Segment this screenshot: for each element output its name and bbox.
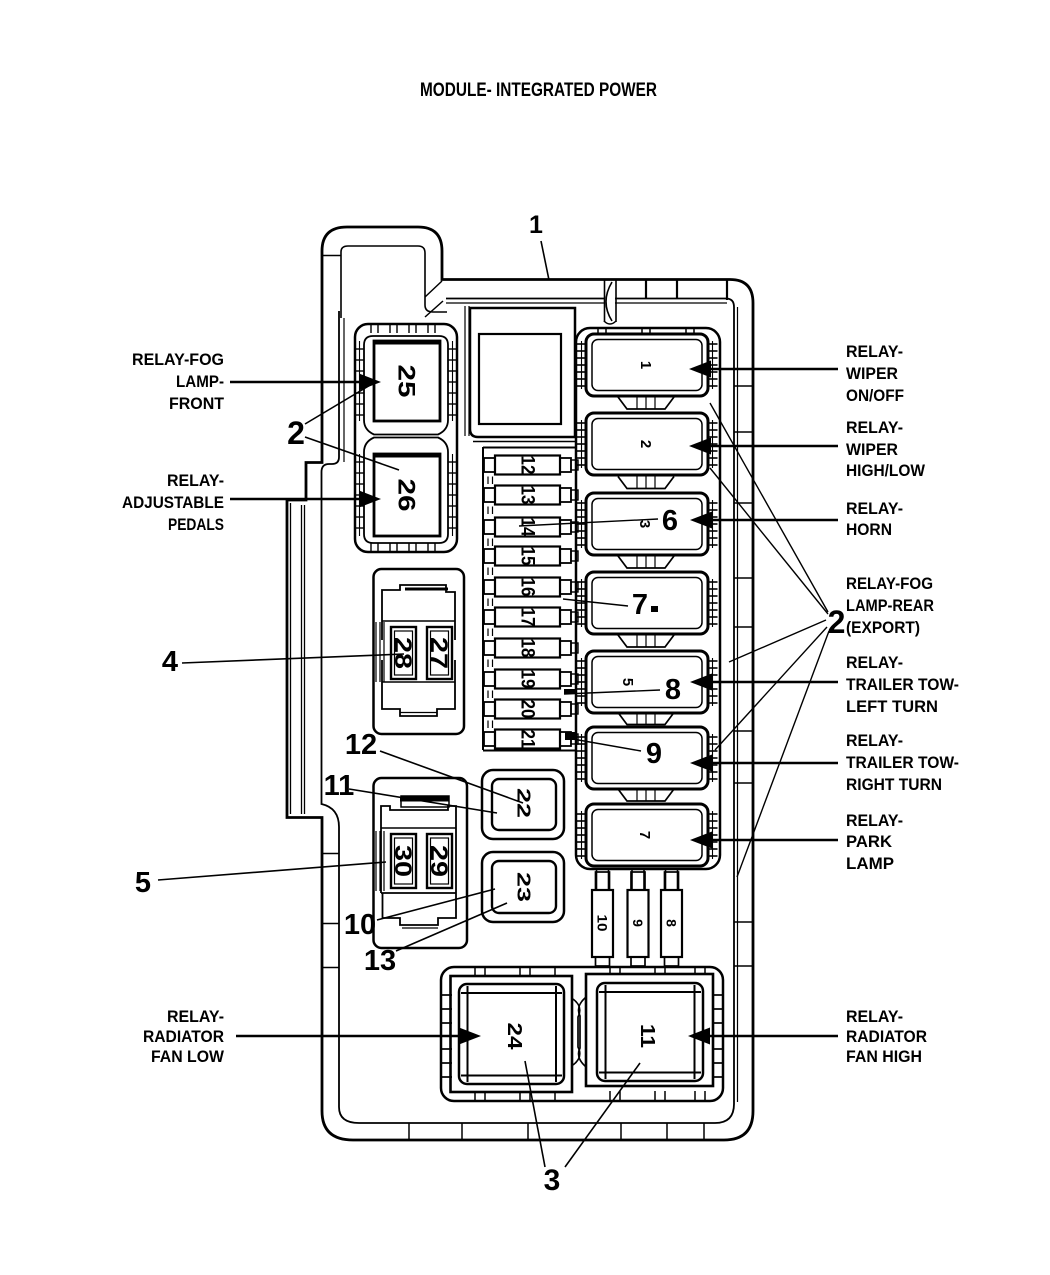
svg-text:RADIATOR: RADIATOR <box>846 1027 927 1046</box>
svg-text:4: 4 <box>162 646 178 678</box>
svg-text:RELAY-: RELAY- <box>846 811 903 830</box>
svg-text:PARK: PARK <box>846 832 893 851</box>
svg-text:MODULE- INTEGRATED POWER: MODULE- INTEGRATED POWER <box>420 80 657 101</box>
svg-text:ADJUSTABLE: ADJUSTABLE <box>122 493 224 512</box>
svg-text:RADIATOR: RADIATOR <box>143 1027 224 1046</box>
svg-text:13: 13 <box>516 486 537 505</box>
svg-text:6: 6 <box>662 505 678 537</box>
svg-text:RELAY-: RELAY- <box>846 342 903 361</box>
svg-text:RELAY-: RELAY- <box>846 418 903 437</box>
svg-text:PEDALS: PEDALS <box>168 515 224 534</box>
svg-text:WIPER: WIPER <box>846 364 898 383</box>
svg-text:30: 30 <box>389 845 416 877</box>
svg-text:RELAY-: RELAY- <box>846 1007 903 1026</box>
svg-text:11: 11 <box>324 770 355 802</box>
svg-text:18: 18 <box>516 639 537 658</box>
svg-text:TRAILER TOW-: TRAILER TOW- <box>846 675 959 694</box>
svg-text:14: 14 <box>516 518 537 537</box>
svg-text:21: 21 <box>516 730 537 749</box>
svg-text:29: 29 <box>425 845 452 877</box>
svg-text:RELAY-: RELAY- <box>846 731 903 750</box>
svg-text:TRAILER TOW-: TRAILER TOW- <box>846 753 959 772</box>
svg-text:LAMP-: LAMP- <box>176 372 224 391</box>
svg-text:23: 23 <box>514 872 534 902</box>
svg-text:17: 17 <box>516 608 537 627</box>
svg-text:2: 2 <box>637 440 654 448</box>
svg-text:(EXPORT): (EXPORT) <box>846 618 920 637</box>
svg-text:2: 2 <box>287 415 305 451</box>
svg-text:3: 3 <box>544 1164 561 1197</box>
svg-text:10: 10 <box>595 915 611 932</box>
svg-text:FAN HIGH: FAN HIGH <box>846 1047 922 1066</box>
svg-text:RIGHT TURN: RIGHT TURN <box>846 775 942 794</box>
svg-text:RELAY-FOG: RELAY-FOG <box>132 350 224 369</box>
svg-text:22: 22 <box>514 788 534 818</box>
svg-text:25: 25 <box>393 365 420 398</box>
svg-text:20: 20 <box>516 700 537 719</box>
svg-text:WIPER: WIPER <box>846 440 898 459</box>
svg-text:RELAY-FOG: RELAY-FOG <box>846 574 933 593</box>
svg-text:19: 19 <box>516 670 537 689</box>
svg-text:9: 9 <box>646 738 662 770</box>
svg-text:12: 12 <box>516 456 537 475</box>
svg-text:26: 26 <box>393 479 420 512</box>
svg-text:7: 7 <box>632 589 648 621</box>
svg-text:11: 11 <box>636 1024 658 1048</box>
svg-text:RELAY-: RELAY- <box>846 499 903 518</box>
svg-text:7: 7 <box>636 831 653 839</box>
svg-text:FRONT: FRONT <box>169 394 225 413</box>
svg-text:12: 12 <box>345 729 377 761</box>
svg-text:10: 10 <box>344 909 376 941</box>
svg-text:15: 15 <box>516 547 537 566</box>
svg-text:LAMP: LAMP <box>846 854 894 873</box>
svg-text:HIGH/LOW: HIGH/LOW <box>846 461 926 480</box>
svg-text:8: 8 <box>665 674 681 706</box>
svg-text:5: 5 <box>619 678 636 686</box>
svg-text:LEFT TURN: LEFT TURN <box>846 697 938 716</box>
svg-text:1: 1 <box>637 361 654 369</box>
svg-text:ON/OFF: ON/OFF <box>846 386 904 405</box>
svg-text:5: 5 <box>135 867 151 899</box>
svg-text:LAMP-REAR: LAMP-REAR <box>846 596 934 615</box>
svg-text:RELAY-: RELAY- <box>846 653 903 672</box>
svg-text:1: 1 <box>529 211 543 239</box>
svg-text:24: 24 <box>503 1023 525 1051</box>
svg-text:27: 27 <box>425 637 452 669</box>
svg-text:3: 3 <box>636 520 653 528</box>
svg-text:13: 13 <box>364 945 396 977</box>
svg-text:RELAY-: RELAY- <box>167 471 224 490</box>
svg-text:RELAY-: RELAY- <box>167 1007 224 1026</box>
svg-text:HORN: HORN <box>846 520 892 539</box>
svg-text:9: 9 <box>630 919 646 927</box>
svg-text:FAN LOW: FAN LOW <box>151 1047 225 1066</box>
svg-text:2: 2 <box>828 604 846 640</box>
svg-text:28: 28 <box>389 637 416 669</box>
svg-text:16: 16 <box>516 578 537 597</box>
svg-text:8: 8 <box>664 919 680 927</box>
